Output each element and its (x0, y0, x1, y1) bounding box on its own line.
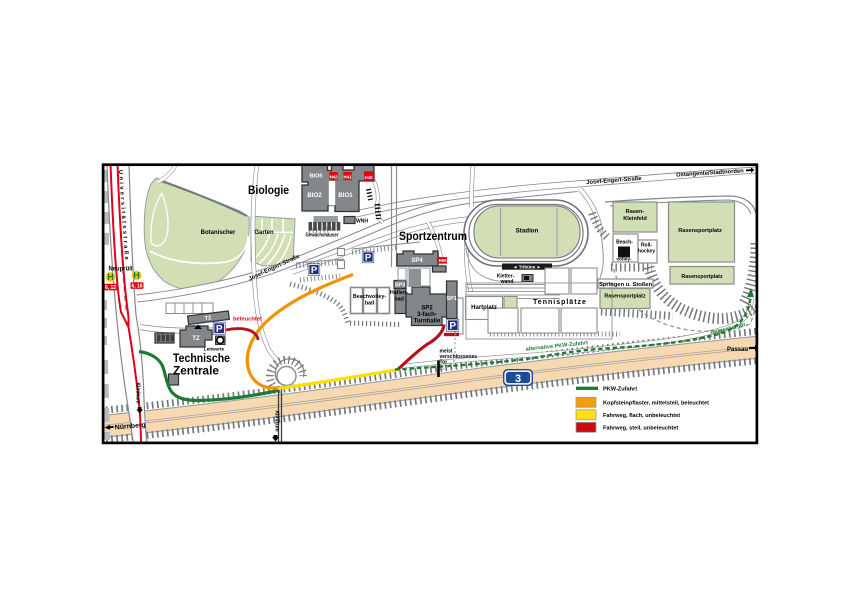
svg-text:BIO2: BIO2 (307, 192, 322, 199)
svg-text:SP1: SP1 (446, 296, 456, 302)
svg-text:Zentrale: Zentrale (173, 366, 219, 378)
svg-text:P: P (449, 321, 456, 332)
svg-text:SP2: SP2 (421, 306, 433, 312)
svg-text:3-fach-: 3-fach- (417, 312, 437, 318)
svg-text:Stadion: Stadion (516, 228, 539, 235)
svg-text:P: P (311, 265, 318, 276)
svg-text:Fahrweg, steil, unbeleuchtet: Fahrweg, steil, unbeleuchtet (603, 426, 678, 432)
svg-text:Hartplatz: Hartplatz (471, 305, 497, 311)
svg-text:H50: H50 (439, 258, 447, 263)
svg-text:Botanischer: Botanischer (201, 230, 236, 236)
svg-text:6, 12: 6, 12 (105, 285, 116, 291)
svg-text:Neuprüll: Neuprüll (109, 266, 133, 273)
svg-text:H: H (133, 271, 140, 281)
svg-text:Turnhalle: Turnhalle (414, 319, 441, 325)
svg-text:TZ: TZ (192, 336, 200, 342)
svg-text:wand: wand (500, 279, 514, 285)
svg-text:H42: H42 (330, 175, 339, 180)
svg-text:Tennisplätze: Tennisplätze (533, 299, 587, 306)
svg-text:Springen u. Stoßen: Springen u. Stoßen (599, 282, 653, 288)
svg-text:Biologie: Biologie (248, 185, 289, 197)
svg-text:6, 16: 6, 16 (131, 284, 142, 290)
svg-text:Rasensportplatz: Rasensportplatz (604, 294, 646, 300)
svg-text:ball: ball (365, 301, 375, 307)
svg-text:Kopfsteinpflaster, mittelsteil: Kopfsteinpflaster, mittelsteil, beleucht… (603, 401, 709, 407)
svg-text:beleuchtet: beleuchtet (233, 317, 262, 323)
svg-text:Klinikum: Klinikum (274, 410, 280, 432)
svg-text:Kleinfeld: Kleinfeld (623, 216, 647, 222)
svg-text:P: P (216, 324, 223, 335)
svg-text:Leitwarte: Leitwarte (204, 347, 225, 352)
svg-text:Beach-: Beach- (616, 240, 633, 246)
svg-text:BIO5: BIO5 (309, 174, 322, 180)
svg-text:Tor: Tor (440, 360, 448, 366)
svg-text:H: H (107, 272, 114, 282)
svg-text:Rasen-: Rasen- (626, 209, 645, 215)
svg-text:◄ Tribüne ►: ◄ Tribüne ► (513, 264, 541, 269)
svg-text:Hallen-: Hallen- (390, 290, 409, 296)
svg-text:WNH: WNH (356, 218, 368, 224)
svg-text:3: 3 (515, 373, 521, 385)
svg-text:Rasensportplatz: Rasensportplatz (681, 274, 723, 280)
svg-text:Gewächshäuser: Gewächshäuser (306, 233, 339, 239)
svg-text:volley-: volley- (616, 257, 632, 263)
svg-text:Garten: Garten (254, 230, 274, 236)
svg-text:PKW-Zufahrt: PKW-Zufahrt (603, 387, 637, 393)
svg-text:bad: bad (394, 297, 404, 303)
svg-text:Sportzentrum: Sportzentrum (399, 231, 467, 243)
svg-text:Rasensportplatz: Rasensportplatz (678, 228, 722, 234)
svg-text:H40: H40 (365, 175, 374, 180)
svg-text:SP4: SP4 (411, 258, 423, 264)
svg-text:Beachvolley-: Beachvolley- (353, 294, 386, 300)
svg-text:P: P (365, 252, 372, 263)
svg-text:Klinikum: Klinikum (135, 382, 141, 404)
svg-text:hockey: hockey (638, 249, 655, 255)
svg-text:BIO1: BIO1 (338, 192, 353, 199)
svg-text:H41: H41 (343, 175, 352, 180)
svg-text:SP3: SP3 (395, 283, 405, 289)
svg-text:Passau: Passau (727, 347, 748, 353)
svg-text:Fahrweg, flach, unbeleuchtet: Fahrweg, flach, unbeleuchtet (603, 413, 680, 419)
svg-text:Technische: Technische (173, 353, 230, 365)
